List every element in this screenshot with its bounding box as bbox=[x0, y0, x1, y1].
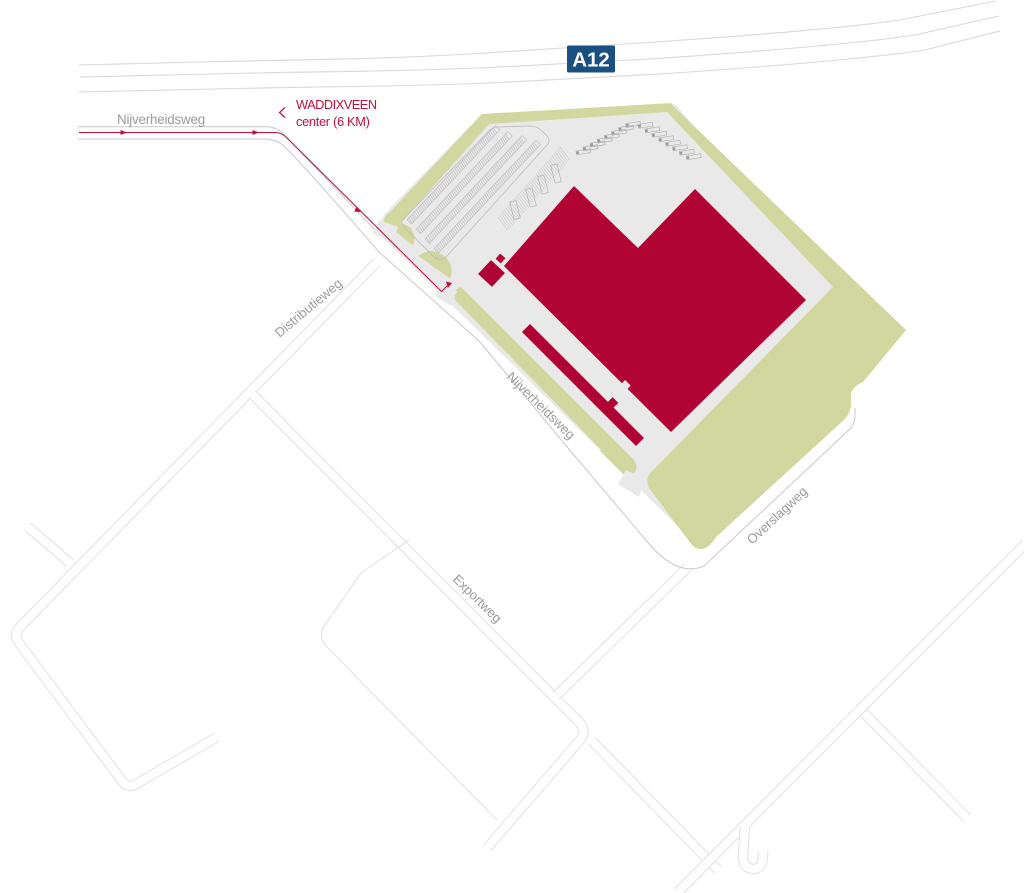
svg-text:WADDIXVEEN: WADDIXVEEN bbox=[296, 97, 377, 112]
svg-text:A12: A12 bbox=[572, 49, 610, 72]
svg-text:center (6 KM): center (6 KM) bbox=[296, 114, 370, 129]
svg-text:Nijverheidsweg: Nijverheidsweg bbox=[117, 112, 205, 127]
